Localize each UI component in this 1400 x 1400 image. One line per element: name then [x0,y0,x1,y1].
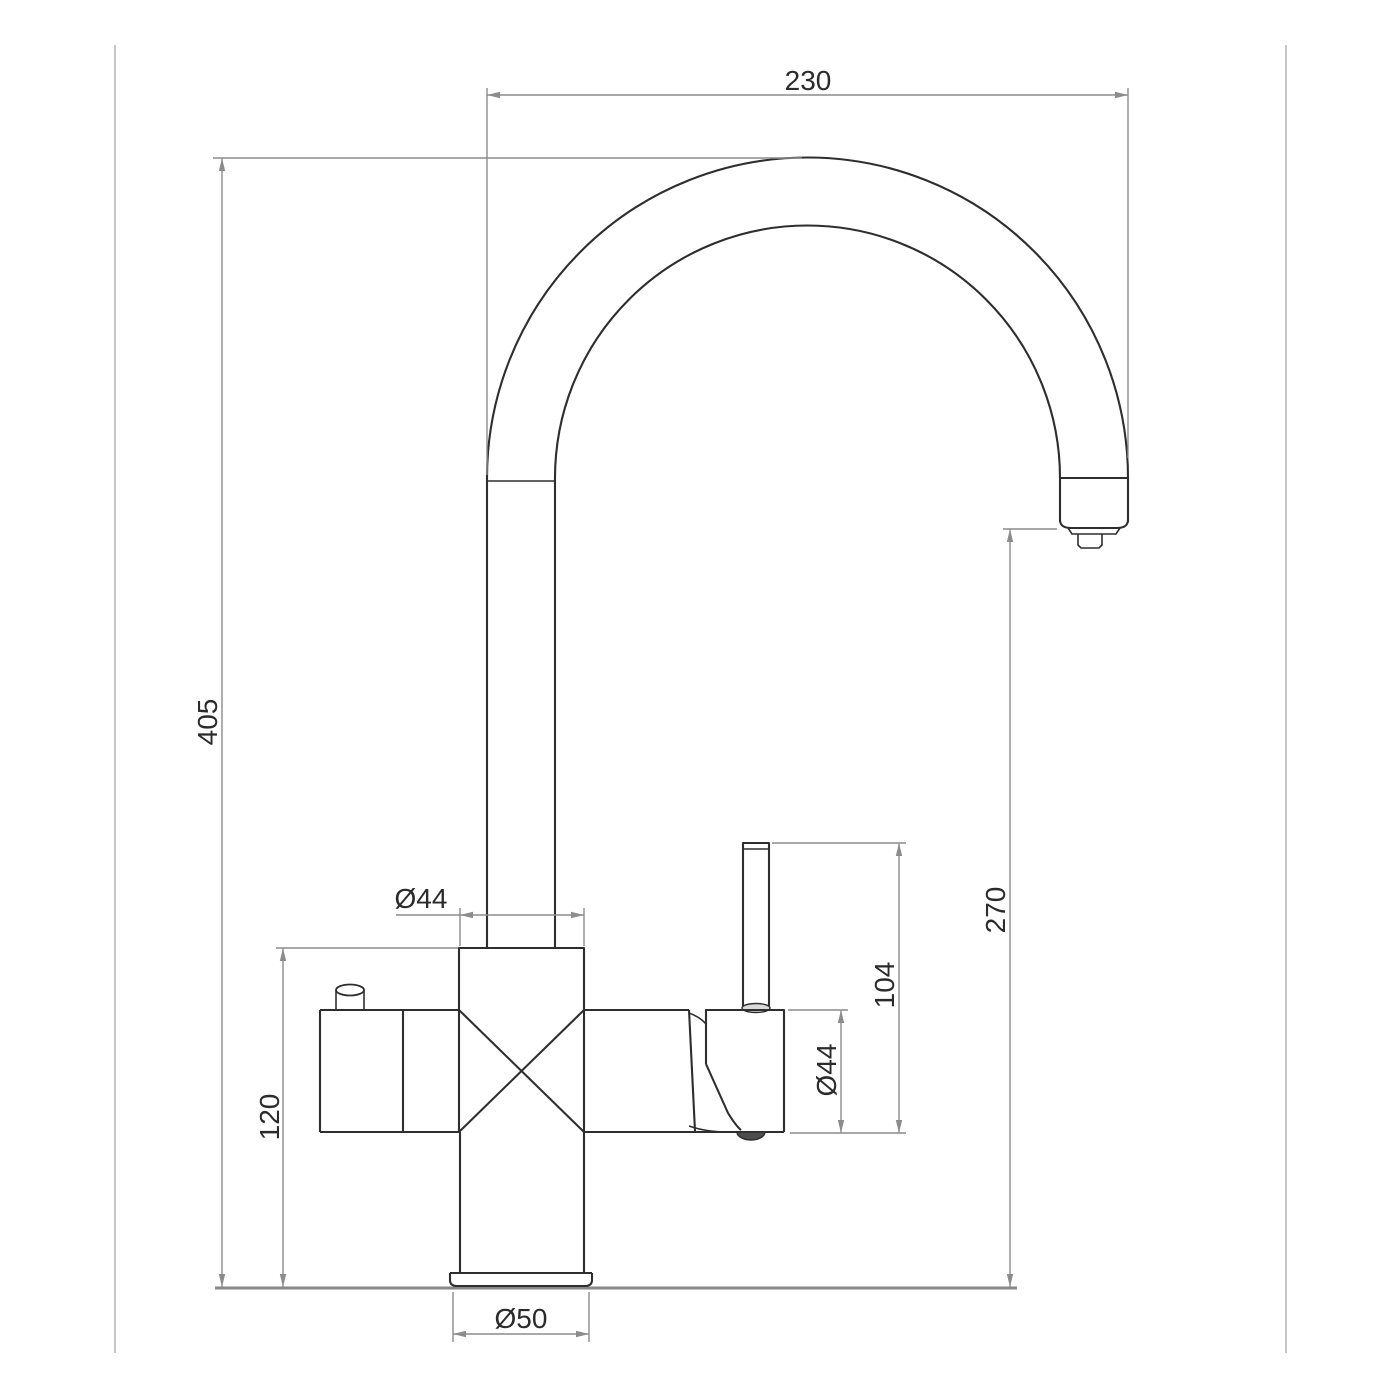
dim-label-lever-height: 104 [869,962,900,1009]
dim-arrow [1007,529,1013,542]
dim-arrow [280,948,286,961]
dim-arrow [896,1120,902,1133]
left-handle-pin-top [336,985,364,996]
dim-spout-reach: 230 [487,65,1128,475]
right-collar-end [689,1010,695,1131]
lever-base-ring [742,1004,770,1013]
left-handle [320,985,403,1133]
dim-label-column-diameter: Ø44 [395,883,448,914]
base-flange-body [450,1273,592,1286]
dim-handle-diameter: Ø44 [788,1010,848,1133]
spout-inner-curve [555,226,1060,950]
dim-label-handle-diameter: Ø44 [811,1044,842,1097]
right-handle-body [706,1010,784,1132]
dim-label-outlet-height: 270 [980,887,1011,934]
right-handle-cut-line [706,1064,741,1130]
right-handle-end-lens [737,1132,765,1140]
dim-arrow [487,92,500,98]
dim-label-spout-reach: 230 [785,65,832,96]
lever-rod [743,843,769,1006]
dim-arrow [838,1010,844,1023]
right-handle [689,843,784,1140]
dim-arrow [453,1331,466,1337]
dim-arrow [571,912,584,918]
dim-arrow [219,158,225,171]
dim-outlet-height: 270 [980,529,1057,1287]
base-flange [450,1273,592,1286]
dim-label-base-diameter: Ø50 [495,1303,548,1334]
dim-arrow [896,843,902,856]
right-joint-curve-top [689,1013,706,1024]
page-frame [115,45,1286,1353]
dim-arrow [460,912,473,918]
dim-arrow [838,1120,844,1133]
dim-arrow [1115,92,1128,98]
spout-outer-curve [487,158,1128,950]
dim-arrow [280,1274,286,1287]
dim-label-overall-height: 405 [192,699,223,746]
dim-body-height: 120 [254,948,458,1287]
dim-label-body-height: 120 [254,1094,285,1141]
body-upper-box [459,948,584,1010]
spout-cap-bottom [1060,520,1128,528]
dim-arrow [576,1331,589,1337]
dim-arrow [1007,1274,1013,1287]
faucet-outline [320,158,1128,1287]
spout-outlet-nozzle [1078,534,1102,548]
dim-base-diameter: Ø50 [453,1292,589,1342]
technical-drawing-canvas: 230 405 120 270 104 Ø44 [0,0,1400,1400]
technical-drawing-page: 230 405 120 270 104 Ø44 [0,0,1400,1400]
dim-arrow [219,1274,225,1287]
